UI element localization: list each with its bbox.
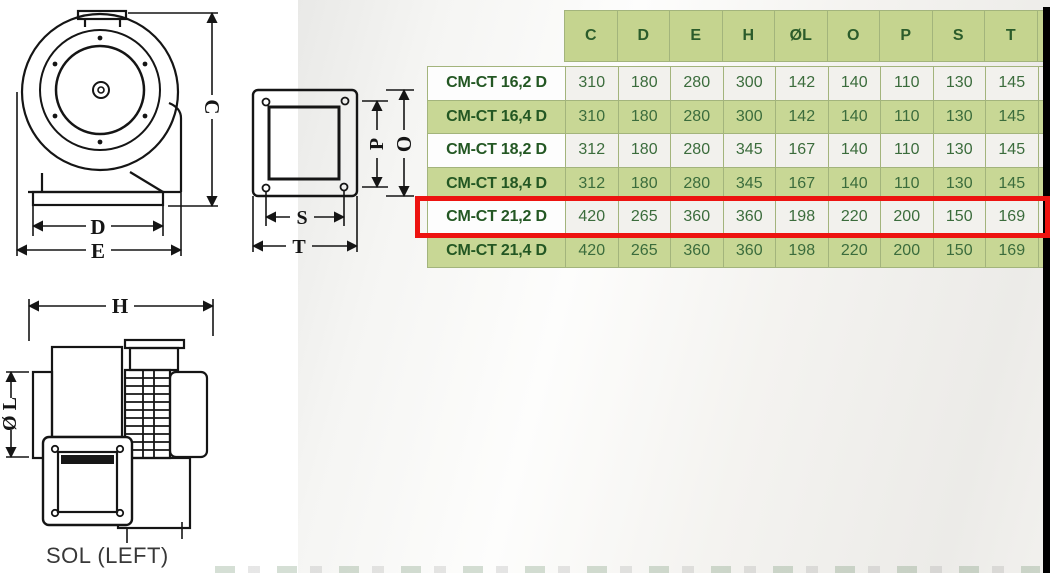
column-header: T bbox=[985, 11, 1037, 61]
column-header: O bbox=[828, 11, 880, 61]
flange-view-drawing: P O S T bbox=[248, 84, 420, 256]
dim-label-h: H bbox=[112, 295, 128, 318]
value-cell: 110 bbox=[881, 67, 933, 100]
value-cell: 300 bbox=[724, 101, 776, 134]
highlight-box bbox=[415, 196, 1050, 238]
value-cell: 130 bbox=[934, 67, 986, 100]
model-name-cell: CM-CT 16,4 D bbox=[428, 101, 565, 134]
column-header: C bbox=[565, 11, 617, 61]
cropped-text-strip bbox=[215, 566, 1040, 573]
value-cell: 110 bbox=[881, 134, 933, 167]
column-header: D bbox=[618, 11, 670, 61]
value-cell: 130 bbox=[934, 101, 986, 134]
video-edge-bar bbox=[1043, 7, 1050, 573]
value-cell: 145 bbox=[986, 101, 1038, 134]
value-cell: 312 bbox=[566, 134, 618, 167]
value-cell: 280 bbox=[671, 134, 723, 167]
catalog-page: C D E P O S T bbox=[0, 0, 1050, 573]
dim-label-t: T bbox=[292, 236, 306, 256]
dim-label-e: E bbox=[91, 239, 105, 263]
value-cell: 150 bbox=[934, 235, 986, 268]
dimension-lines bbox=[253, 90, 414, 252]
column-header: S bbox=[933, 11, 985, 61]
dim-label-o: O bbox=[392, 136, 416, 152]
column-header: H bbox=[723, 11, 775, 61]
value-cell: 142 bbox=[776, 101, 828, 134]
model-name-cell: CM-CT 18,2 D bbox=[428, 134, 565, 167]
front-view-drawing: C D E bbox=[0, 0, 230, 266]
value-cell: 140 bbox=[829, 67, 881, 100]
value-cell: 265 bbox=[619, 235, 671, 268]
column-header: E bbox=[670, 11, 722, 61]
value-cell: 180 bbox=[619, 134, 671, 167]
value-cell: 360 bbox=[671, 235, 723, 268]
model-name-cell: CM-CT 21,4 D bbox=[428, 235, 565, 268]
flange-outline bbox=[253, 90, 357, 196]
value-cell: 169 bbox=[986, 235, 1038, 268]
column-header: P bbox=[880, 11, 932, 61]
value-cell: 200 bbox=[881, 235, 933, 268]
value-cell: 280 bbox=[671, 67, 723, 100]
model-name-cell: CM-CT 16,2 D bbox=[428, 67, 565, 100]
value-cell: 142 bbox=[776, 67, 828, 100]
value-cell: 345 bbox=[724, 134, 776, 167]
dims-table-header: C D E H ØL O P S T bbox=[564, 10, 1045, 62]
dim-label-ol: Ø L bbox=[0, 397, 21, 431]
bolt-holes bbox=[53, 36, 148, 145]
value-cell: 198 bbox=[776, 235, 828, 268]
column-header: ØL bbox=[775, 11, 827, 61]
side-view-drawing: H Ø L bbox=[0, 295, 235, 573]
value-cell: 130 bbox=[934, 134, 986, 167]
value-cell: 180 bbox=[619, 101, 671, 134]
value-cell: 167 bbox=[776, 134, 828, 167]
value-cell: 180 bbox=[619, 67, 671, 100]
dim-label-s: S bbox=[296, 207, 307, 229]
value-cell: 140 bbox=[829, 134, 881, 167]
value-cell: 110 bbox=[881, 101, 933, 134]
side-view-caption: SOL (LEFT) bbox=[46, 543, 206, 569]
value-cell: 310 bbox=[566, 67, 618, 100]
value-cell: 360 bbox=[724, 235, 776, 268]
fan-scroll-outline bbox=[22, 11, 181, 205]
dim-label-c: C bbox=[200, 99, 224, 114]
value-cell: 145 bbox=[986, 67, 1038, 100]
value-cell: 310 bbox=[566, 101, 618, 134]
value-cell: 140 bbox=[829, 101, 881, 134]
value-cell: 145 bbox=[986, 134, 1038, 167]
dim-label-p: P bbox=[366, 138, 388, 150]
value-cell: 420 bbox=[566, 235, 618, 268]
outlet-flange-front bbox=[43, 437, 132, 525]
value-cell: 280 bbox=[671, 101, 723, 134]
dim-label-d: D bbox=[90, 215, 105, 239]
value-cell: 220 bbox=[829, 235, 881, 268]
value-cell: 300 bbox=[724, 67, 776, 100]
